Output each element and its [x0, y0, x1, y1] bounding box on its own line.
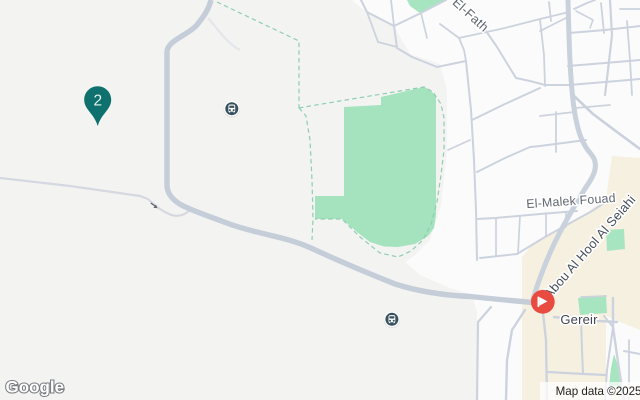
svg-text:2: 2	[93, 93, 102, 110]
svg-text:Google: Google	[6, 378, 65, 397]
svg-text:Map data ©2025: Map data ©2025	[556, 385, 640, 398]
svg-text:Gereir: Gereir	[560, 312, 598, 327]
